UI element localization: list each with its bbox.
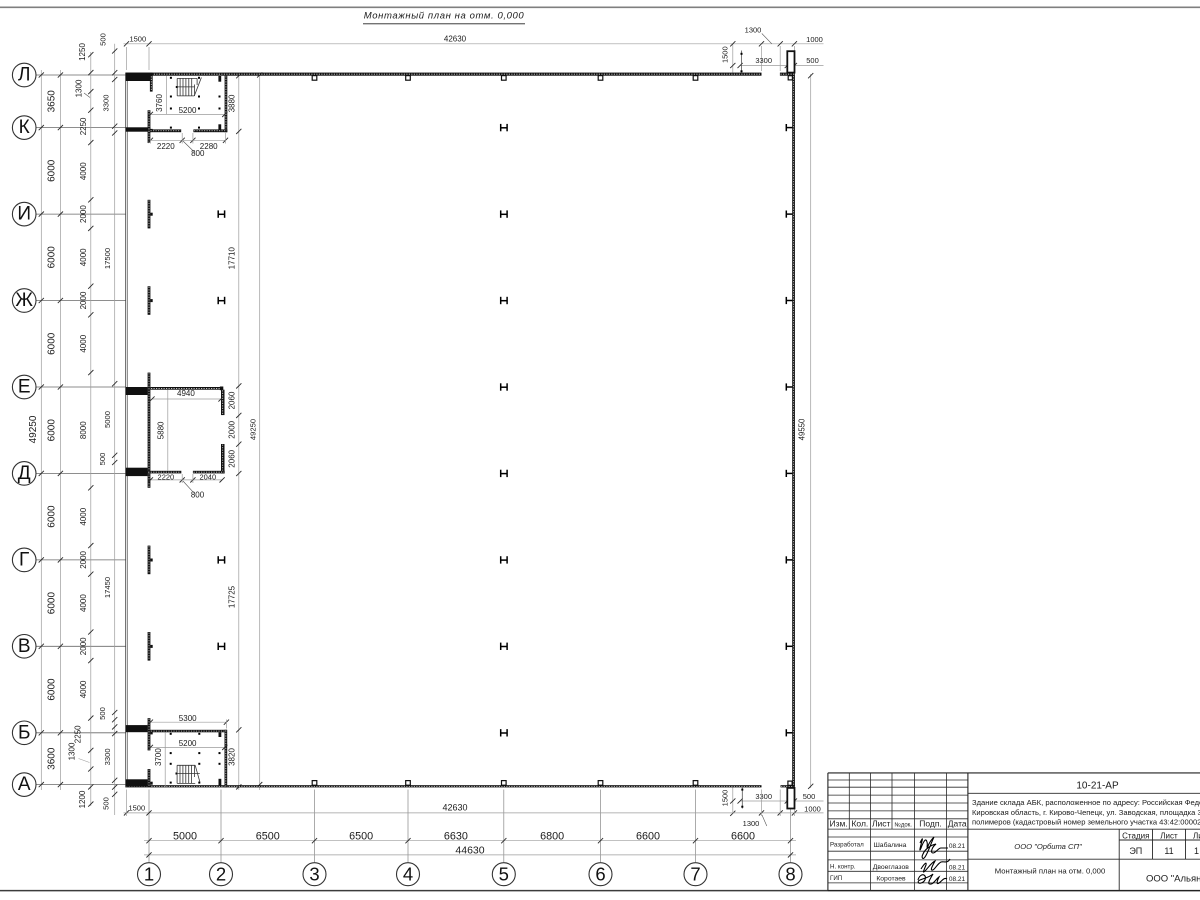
svg-text:1500: 1500 (128, 803, 145, 812)
svg-text:500: 500 (806, 56, 819, 65)
svg-text:ООО "Орбита СП": ООО "Орбита СП" (1014, 842, 1082, 851)
svg-text:Двоеглазов: Двоеглазов (873, 864, 910, 871)
svg-text:4000: 4000 (79, 680, 88, 698)
svg-text:2220: 2220 (158, 472, 175, 481)
svg-text:7: 7 (690, 864, 700, 885)
svg-text:5: 5 (499, 864, 509, 885)
svg-text:1300: 1300 (68, 742, 77, 760)
svg-text:6800: 6800 (540, 831, 564, 843)
svg-text:6: 6 (595, 864, 605, 885)
svg-text:6000: 6000 (46, 332, 57, 355)
svg-text:44630: 44630 (455, 844, 484, 856)
svg-text:Кировская область, г. Кирово-Ч: Кировская область, г. Кирово-Чепецк, ул.… (972, 808, 1200, 817)
svg-text:Лист: Лист (872, 819, 891, 829)
svg-text:2220: 2220 (157, 142, 175, 151)
svg-text:1500: 1500 (720, 46, 729, 63)
svg-text:5000: 5000 (173, 831, 197, 843)
svg-text:3300: 3300 (102, 95, 111, 112)
svg-text:5880: 5880 (157, 421, 166, 439)
svg-text:08.21: 08.21 (949, 865, 966, 872)
svg-text:2000: 2000 (79, 637, 88, 655)
svg-text:08.21: 08.21 (949, 876, 966, 883)
svg-text:3300: 3300 (755, 56, 772, 65)
svg-text:А: А (18, 774, 31, 795)
svg-text:6000: 6000 (46, 159, 57, 182)
svg-text:1000: 1000 (806, 35, 823, 44)
svg-text:8: 8 (785, 864, 795, 885)
svg-text:№док.: №док. (894, 821, 912, 828)
svg-text:Подп.: Подп. (919, 819, 942, 829)
svg-text:500: 500 (99, 33, 108, 46)
svg-text:4000: 4000 (79, 248, 88, 266)
svg-text:2040: 2040 (199, 472, 216, 481)
svg-text:1250: 1250 (78, 43, 87, 61)
svg-text:49250: 49250 (28, 415, 39, 443)
svg-text:Н. контр.: Н. контр. (830, 864, 856, 871)
svg-text:3880: 3880 (227, 94, 236, 112)
svg-text:3300: 3300 (103, 748, 112, 765)
svg-text:полимеров (кадастровый номер з: полимеров (кадастровый номер земельного … (972, 818, 1200, 827)
svg-text:42630: 42630 (444, 35, 467, 44)
svg-text:6600: 6600 (731, 831, 755, 843)
svg-text:Изм.: Изм. (829, 819, 847, 829)
svg-text:1300: 1300 (745, 25, 762, 34)
svg-text:Дата: Дата (948, 819, 967, 829)
svg-text:42630: 42630 (442, 802, 467, 812)
svg-text:500: 500 (98, 453, 107, 466)
svg-text:6500: 6500 (256, 831, 280, 843)
svg-text:17450: 17450 (103, 577, 112, 598)
svg-text:1500: 1500 (720, 790, 729, 807)
svg-text:6000: 6000 (46, 419, 57, 442)
svg-text:Здание склада АБК, расположенн: Здание склада АБК, расположенное по адре… (972, 798, 1200, 807)
svg-text:3820: 3820 (227, 748, 236, 766)
svg-text:1: 1 (1194, 846, 1199, 856)
svg-text:500: 500 (102, 797, 111, 810)
svg-text:5000: 5000 (103, 411, 112, 428)
svg-text:17725: 17725 (227, 585, 236, 608)
svg-text:6600: 6600 (636, 831, 660, 843)
svg-text:500: 500 (98, 707, 107, 720)
svg-text:2000: 2000 (79, 550, 88, 568)
svg-text:3700: 3700 (154, 748, 163, 766)
svg-text:Стадия: Стадия (1122, 832, 1149, 841)
svg-text:6000: 6000 (46, 246, 57, 269)
svg-text:11: 11 (1164, 846, 1173, 856)
svg-text:1300: 1300 (75, 79, 84, 97)
svg-text:6000: 6000 (46, 592, 57, 615)
svg-text:Д: Д (18, 463, 31, 484)
svg-text:4940: 4940 (177, 389, 195, 398)
svg-text:5200: 5200 (179, 739, 197, 748)
svg-text:1200: 1200 (78, 790, 87, 808)
svg-text:2250: 2250 (74, 725, 83, 743)
svg-text:1: 1 (144, 864, 154, 885)
svg-text:4000: 4000 (79, 507, 88, 525)
svg-text:Монтажный план на отм. 0,000: Монтажный план на отм. 0,000 (995, 867, 1105, 876)
svg-text:ЭП: ЭП (1129, 846, 1142, 856)
svg-text:6630: 6630 (444, 831, 468, 843)
svg-text:2000: 2000 (79, 205, 88, 223)
svg-text:Монтажный план на отм. 0,000: Монтажный план на отм. 0,000 (364, 10, 525, 21)
svg-text:Коротаев: Коротаев (876, 875, 906, 882)
svg-text:3760: 3760 (155, 94, 164, 112)
svg-text:Разработал: Разработал (830, 842, 864, 849)
svg-text:17500: 17500 (103, 248, 112, 269)
svg-text:ГИП: ГИП (830, 875, 842, 882)
svg-text:10-21-АР: 10-21-АР (1076, 781, 1119, 792)
svg-text:1000: 1000 (804, 805, 821, 814)
svg-text:2250: 2250 (79, 117, 88, 135)
svg-text:3300: 3300 (755, 792, 772, 801)
svg-text:4000: 4000 (79, 334, 88, 352)
svg-text:5300: 5300 (179, 714, 197, 723)
svg-text:5200: 5200 (179, 106, 197, 115)
svg-text:3: 3 (309, 864, 319, 885)
svg-text:3650: 3650 (46, 90, 57, 113)
svg-text:1300: 1300 (743, 819, 760, 828)
svg-text:Б: Б (18, 722, 30, 743)
svg-text:Листов: Листов (1193, 832, 1200, 841)
svg-text:17710: 17710 (227, 247, 236, 270)
svg-text:4000: 4000 (79, 162, 88, 180)
svg-text:Е: Е (18, 377, 31, 398)
svg-text:Ж: Ж (15, 290, 33, 311)
svg-text:4: 4 (403, 864, 413, 885)
svg-text:Г: Г (19, 549, 29, 570)
svg-text:49550: 49550 (798, 418, 807, 440)
svg-text:6500: 6500 (349, 831, 373, 843)
svg-text:2060: 2060 (227, 391, 236, 409)
svg-text:Шабалина: Шабалина (874, 841, 907, 849)
svg-text:49250: 49250 (248, 419, 257, 440)
svg-text:8000: 8000 (79, 421, 88, 439)
svg-text:К: К (19, 117, 30, 138)
svg-text:3600: 3600 (46, 747, 57, 770)
svg-text:4000: 4000 (79, 594, 88, 612)
svg-text:500: 500 (803, 792, 816, 801)
svg-text:2: 2 (216, 864, 226, 885)
svg-text:В: В (18, 636, 31, 657)
svg-text:И: И (17, 204, 31, 225)
svg-text:2000: 2000 (79, 291, 88, 309)
svg-text:Лист: Лист (1160, 832, 1178, 841)
svg-text:6000: 6000 (46, 678, 57, 701)
svg-text:08.21: 08.21 (949, 843, 966, 850)
svg-text:1500: 1500 (129, 35, 146, 44)
svg-text:2000: 2000 (227, 420, 236, 438)
svg-text:ООО "Альянс-Проект": ООО "Альянс-Проект" (1146, 874, 1200, 885)
svg-text:6000: 6000 (46, 505, 57, 528)
svg-text:2060: 2060 (227, 449, 236, 467)
svg-text:Л: Л (18, 65, 30, 86)
svg-text:Кол.: Кол. (851, 819, 868, 829)
